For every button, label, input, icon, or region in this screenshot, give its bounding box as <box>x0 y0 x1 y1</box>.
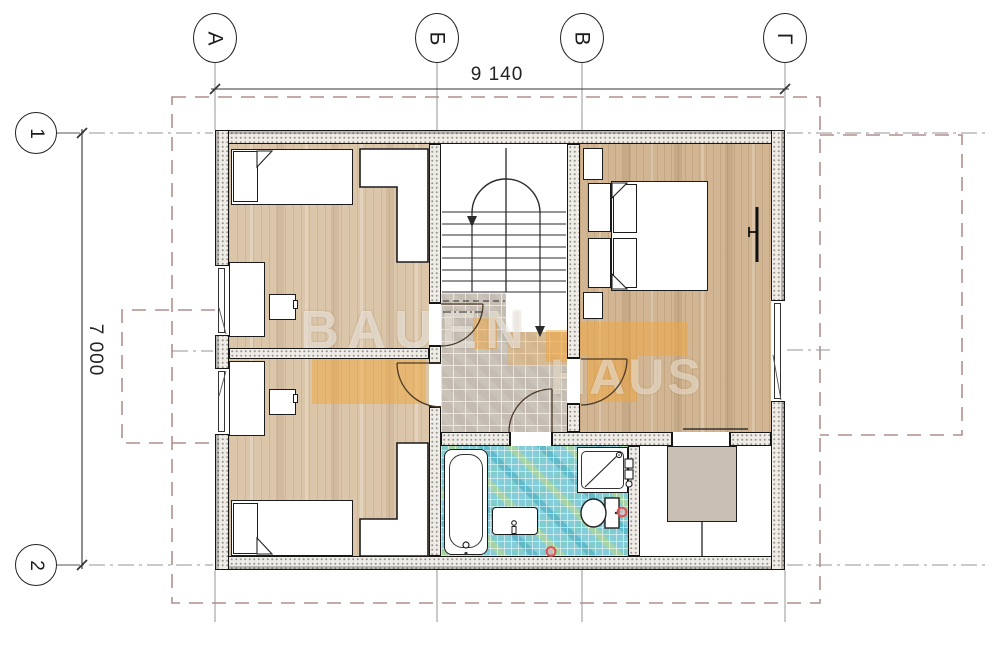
desk-top-room <box>229 262 265 337</box>
axis-label-1: 1 <box>26 128 45 139</box>
master-cabinet-bottom <box>583 292 603 319</box>
wall-partition-h2-c <box>730 432 771 446</box>
wall-partition-v2-lower <box>567 404 580 432</box>
wall-exterior-bottom <box>215 556 785 570</box>
wall-partition-v3 <box>628 446 640 556</box>
wall-partition-v1-upper <box>429 144 441 303</box>
watermark-orange-block-1 <box>312 358 426 404</box>
floor-plan-sheet: BAUEN HAUS <box>0 0 1000 648</box>
wall-partition-v1-lower <box>429 407 441 556</box>
master-cabinet-top <box>583 148 603 180</box>
nightstand-1 <box>588 183 611 232</box>
window-left-1-frame <box>218 268 225 333</box>
pillow-bottom-bed <box>233 503 258 554</box>
double-bed-pillow-1 <box>613 184 637 233</box>
chair-bottom-room <box>269 389 296 415</box>
dimension-width-label: 9 140 <box>437 64 557 86</box>
wall-partition-v2-upper <box>567 144 580 358</box>
wall-exterior-top <box>215 130 785 144</box>
wall-partition-h2-a <box>441 432 510 446</box>
axis-label-a: А <box>204 31 225 45</box>
axis-bubble-col-v: В <box>560 13 604 63</box>
storage-box <box>667 446 737 522</box>
door-opening-master <box>567 358 580 404</box>
shower-tray-inner <box>581 451 624 489</box>
wall-exterior-left <box>215 130 229 570</box>
axis-bubble-row-2: 2 <box>15 544 57 586</box>
dimension-height-label: 7 000 <box>84 305 106 395</box>
axis-bubble-col-g: Г <box>763 13 807 63</box>
door-opening-bedroom-bottom <box>429 363 441 407</box>
stairwell-floor <box>441 144 567 293</box>
washbasin-vanity <box>492 507 538 535</box>
roof-annex-outline <box>820 135 962 435</box>
wall-partition-h2-b <box>552 432 672 446</box>
double-bed-pillow-2 <box>613 238 637 288</box>
axis-bubble-col-b: Б <box>415 13 459 63</box>
chair-bottom-notch <box>293 394 298 403</box>
door-opening-bedroom-top <box>429 303 441 346</box>
axis-label-b: Б <box>427 31 448 45</box>
door-opening-storage <box>672 432 730 446</box>
wall-partition-h1 <box>229 348 429 359</box>
axis-bubble-col-a: А <box>193 13 237 63</box>
pillow-top-bed <box>233 151 258 202</box>
nightstand-2 <box>588 238 611 288</box>
axis-label-2: 2 <box>26 560 45 571</box>
door-opening-bathroom <box>510 432 552 446</box>
roof-dormer-outline <box>122 310 215 443</box>
axis-bubble-row-1: 1 <box>15 112 57 154</box>
wall-partition-v1-mid <box>429 346 441 363</box>
axis-label-v: В <box>571 31 592 45</box>
axis-label-g: Г <box>775 32 796 43</box>
bathtub-inner <box>449 454 483 548</box>
chair-top-notch <box>293 300 298 309</box>
chair-top-room <box>269 294 296 320</box>
window-left-2-frame <box>218 371 225 432</box>
desk-bottom-room <box>229 361 265 436</box>
window-right-frame <box>774 303 781 399</box>
